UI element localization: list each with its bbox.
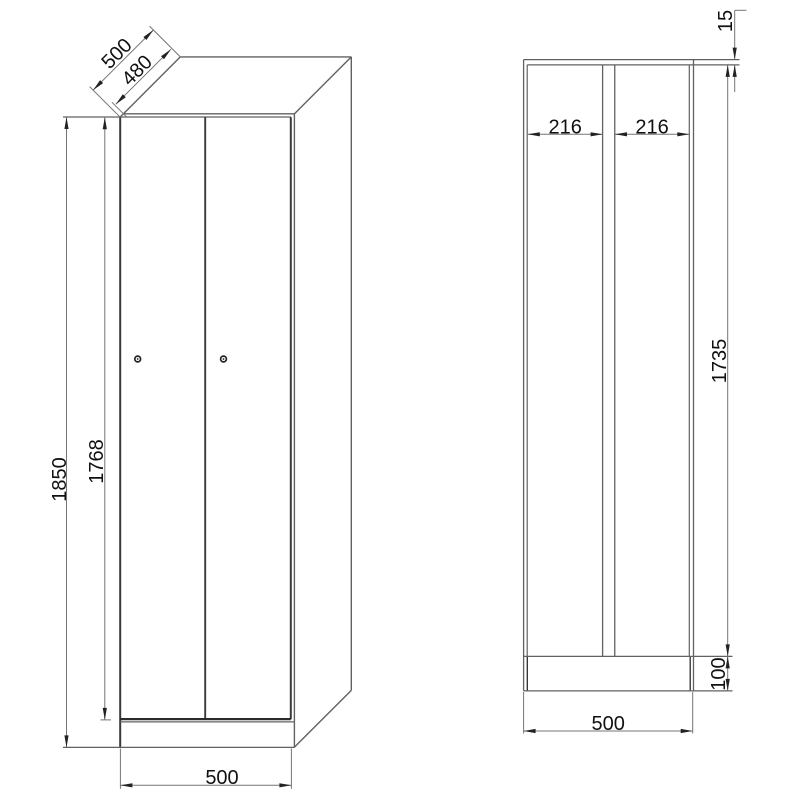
svg-text:1768: 1768 xyxy=(86,439,108,484)
svg-text:1735: 1735 xyxy=(709,339,731,384)
svg-text:216: 216 xyxy=(635,116,668,138)
svg-text:216: 216 xyxy=(549,116,582,138)
svg-text:500: 500 xyxy=(205,767,238,789)
svg-text:15: 15 xyxy=(715,10,737,32)
svg-text:100: 100 xyxy=(708,657,730,690)
svg-text:500: 500 xyxy=(592,713,625,735)
svg-text:1850: 1850 xyxy=(49,457,71,502)
